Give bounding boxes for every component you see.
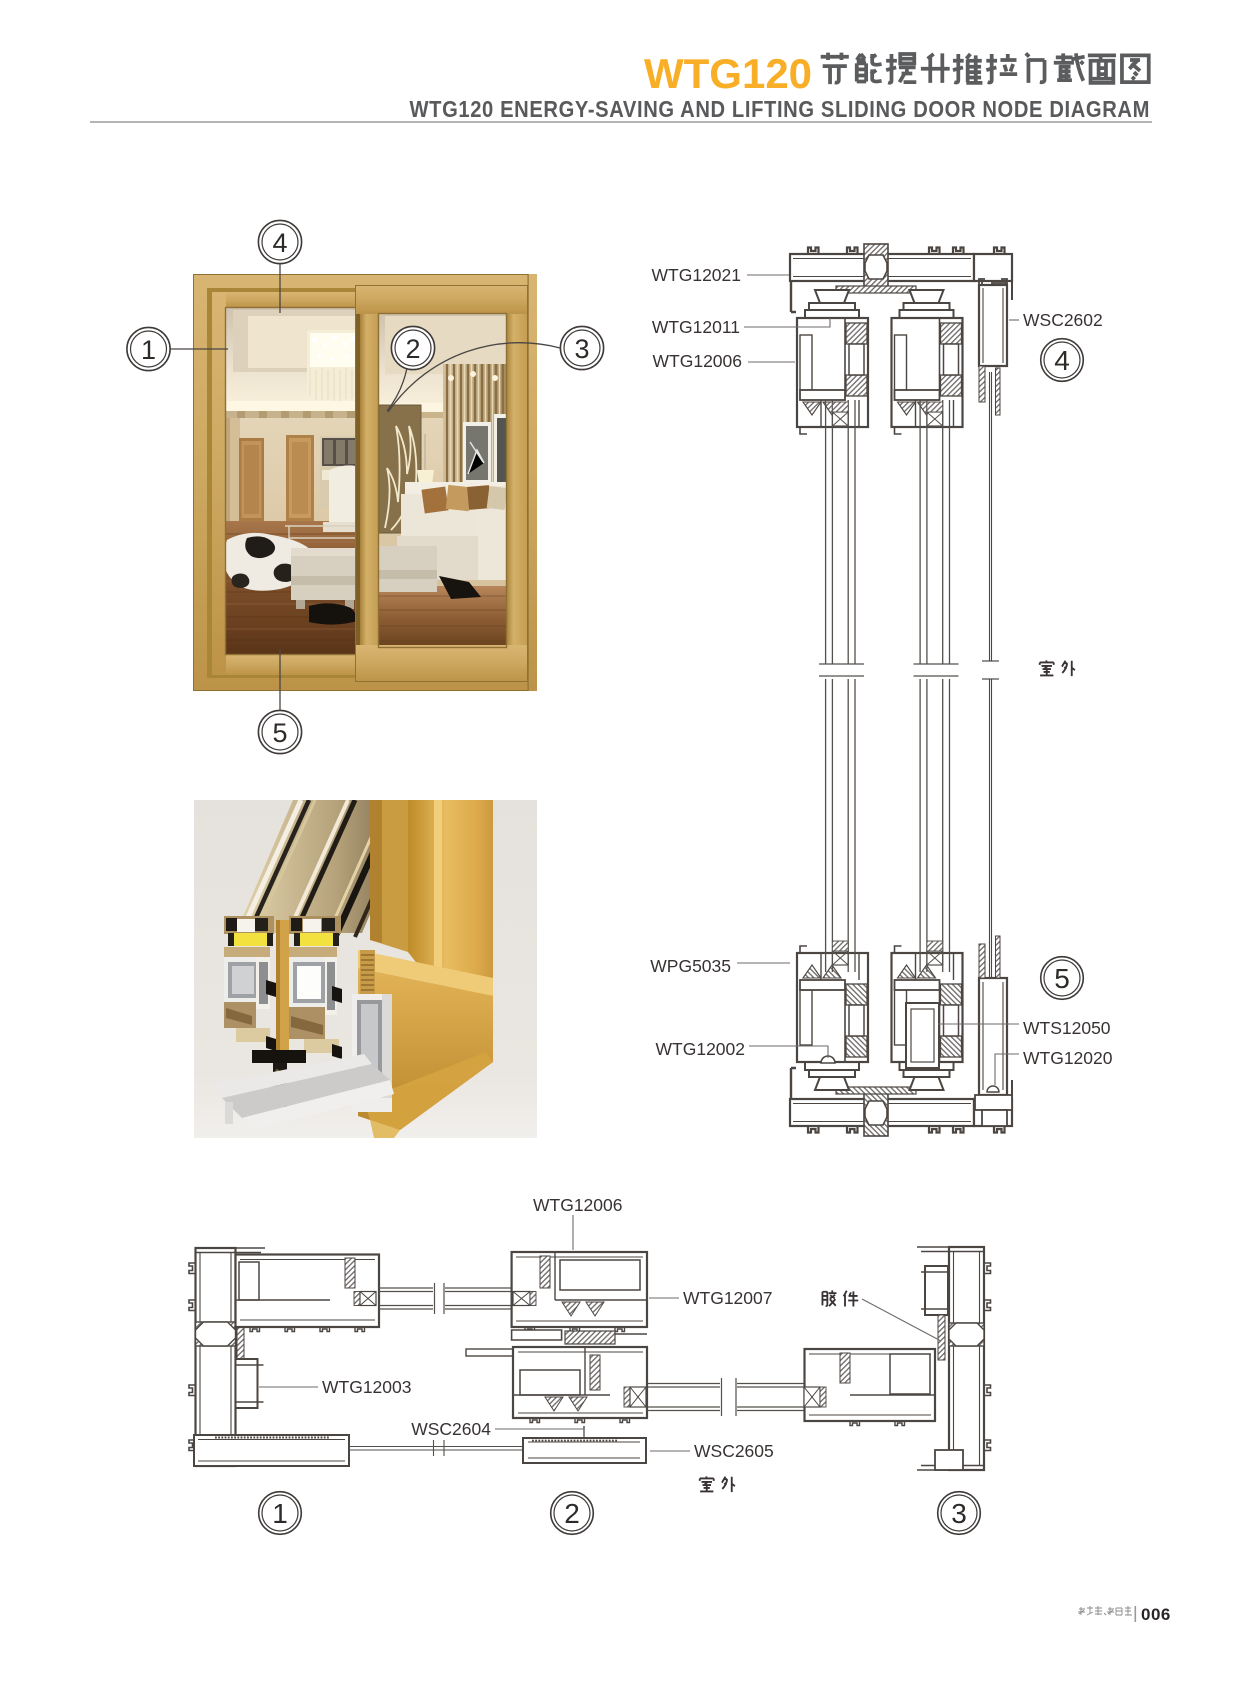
svg-text:5: 5 bbox=[1054, 963, 1070, 994]
svg-text:4: 4 bbox=[1054, 345, 1070, 376]
svg-text:3: 3 bbox=[951, 1498, 967, 1529]
svg-text:WTS12050: WTS12050 bbox=[1023, 1018, 1111, 1038]
svg-text:WTG12006: WTG12006 bbox=[653, 351, 742, 371]
svg-text:WSC2605: WSC2605 bbox=[694, 1441, 774, 1461]
svg-text:006: 006 bbox=[1141, 1605, 1171, 1624]
svg-text:1: 1 bbox=[141, 335, 156, 365]
svg-text:5: 5 bbox=[272, 718, 287, 748]
svg-text:WTG12003: WTG12003 bbox=[322, 1377, 411, 1397]
svg-text:WSC2604: WSC2604 bbox=[411, 1419, 491, 1439]
svg-text:WTG12020: WTG12020 bbox=[1023, 1048, 1113, 1068]
svg-text:WTG12021: WTG12021 bbox=[652, 265, 741, 285]
svg-text:WTG12011: WTG12011 bbox=[652, 317, 740, 337]
svg-text:WSC2602: WSC2602 bbox=[1023, 310, 1103, 330]
svg-text:3: 3 bbox=[574, 334, 589, 364]
svg-text:4: 4 bbox=[272, 228, 287, 258]
svg-text:2: 2 bbox=[564, 1498, 580, 1529]
svg-text:WPG5035: WPG5035 bbox=[650, 956, 731, 976]
svg-text:WTG12006: WTG12006 bbox=[533, 1195, 622, 1215]
svg-text:2: 2 bbox=[405, 334, 420, 364]
svg-text:WTG12007: WTG12007 bbox=[683, 1288, 772, 1308]
svg-text:1: 1 bbox=[272, 1498, 288, 1529]
svg-text:WTG12002: WTG12002 bbox=[656, 1039, 745, 1059]
